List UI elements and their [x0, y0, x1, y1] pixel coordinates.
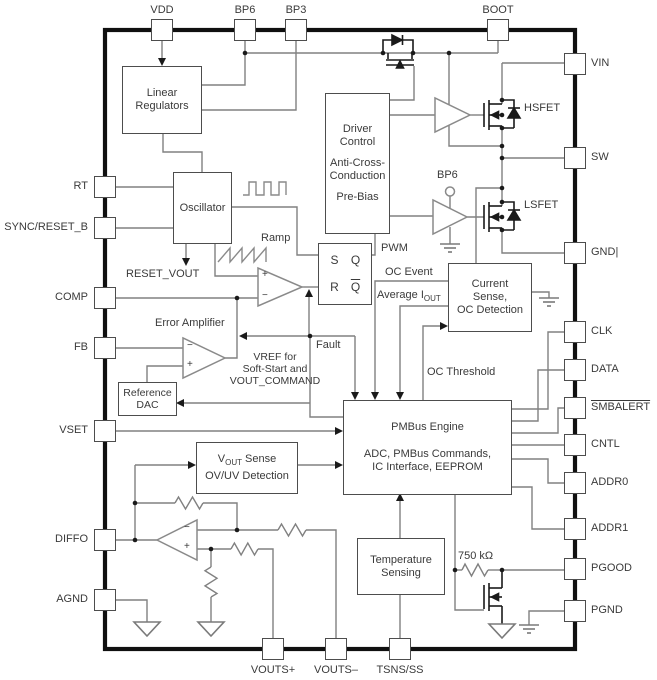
pin-fb [94, 337, 116, 359]
pin-label-agnd: AGND [2, 593, 88, 606]
pgood-fet-symbol [484, 570, 502, 624]
pin-label-vouts-plus: VOUTS+ [243, 664, 303, 677]
pin-pgnd [564, 600, 586, 622]
pin-label-tsns-ss: TSNS/SS [370, 664, 430, 677]
pin-label-vin: VIN [591, 57, 609, 70]
pin-bp3 [285, 19, 307, 41]
driver-control-block: Driver Control Anti-Cross- Conduction Pr… [325, 93, 390, 234]
pin-vset [94, 420, 116, 442]
label-fault: Fault [316, 339, 340, 351]
pin-label-vouts-minus: VOUTS– [306, 664, 366, 677]
pin-label-bp3: BP3 [268, 4, 324, 17]
pin-vdd [151, 19, 173, 41]
vout-sense-block: VOUT Sense OV/UV Detection [196, 442, 298, 494]
diff-amp-minus: − [184, 522, 190, 534]
earth-ground-current-sense [539, 298, 559, 306]
pin-clk [564, 321, 586, 343]
pin-smbalert [564, 397, 586, 419]
error-amp-minus: − [187, 340, 193, 352]
pin-vouts-minus [325, 638, 347, 660]
pwm-comparator-minus: − [262, 290, 268, 302]
pin-label-sync: SYNC/RESET_B [2, 221, 88, 234]
label-reset-vout: RESET_VOUT [126, 268, 199, 280]
linear-regulators-block: Linear Regulators [122, 66, 202, 134]
pin-gnd [564, 242, 586, 264]
pin-vouts-plus [262, 638, 284, 660]
label-ramp: Ramp [261, 232, 290, 244]
pin-label-diffo: DIFFO [2, 533, 88, 546]
pin-label-pgnd: PGND [591, 604, 623, 617]
earth-ground-pgnd [519, 625, 539, 633]
pmbus-engine-block: PMBus Engine ADC, PMBus Commands, IC Int… [343, 400, 512, 495]
diff-sense-amplifier [157, 520, 197, 560]
label-oc-event: OC Event [385, 266, 433, 278]
open-ground-agnd [134, 622, 160, 636]
pin-label-addr0: ADDR0 [591, 476, 628, 489]
bp6-terminal [446, 187, 455, 196]
label-pullup-resistor: 750 kΩ [458, 550, 493, 562]
boot-switch-fet [383, 35, 414, 68]
pin-agnd [94, 589, 116, 611]
label-bp6-internal: BP6 [437, 169, 458, 181]
pin-label-rt: RT [2, 180, 88, 193]
pin-vin [564, 53, 586, 75]
pin-label-vdd: VDD [134, 4, 190, 17]
pin-label-data: DATA [591, 363, 619, 376]
pin-sync-reset-b [94, 217, 116, 239]
pin-boot [487, 19, 509, 41]
pin-data [564, 359, 586, 381]
reference-dac-block: Reference DAC [118, 382, 177, 416]
pin-label-fb: FB [2, 341, 88, 354]
pin-rt [94, 176, 116, 198]
pin-bp6 [234, 19, 256, 41]
label-pwm: PWM [381, 242, 408, 254]
pin-addr1 [564, 518, 586, 540]
ramp-waveform-icon [218, 248, 266, 262]
open-ground-pgood [489, 624, 515, 638]
label-hsfet: HSFET [524, 102, 560, 114]
label-lsfet: LSFET [524, 199, 558, 211]
pin-label-gnd: GND| [591, 246, 618, 259]
clock-waveform-icon [243, 182, 286, 195]
hs-driver-buffer [435, 98, 470, 132]
pwm-comparator-plus: + [262, 269, 268, 281]
pin-cntl [564, 434, 586, 456]
label-error-amplifier: Error Amplifier [155, 317, 225, 329]
block-diagram: Linear Regulators Oscillator Driver Cont… [0, 0, 657, 680]
pin-addr0 [564, 472, 586, 494]
pin-label-bp6: BP6 [217, 4, 273, 17]
diff-amp-plus: + [184, 541, 190, 553]
pin-label-addr1: ADDR1 [591, 522, 628, 535]
pin-label-vset: VSET [2, 424, 88, 437]
oscillator-block: Oscillator [173, 172, 232, 244]
pwm-latch-block: S Q R Q [318, 243, 372, 305]
earth-ground-ls-driver [440, 244, 460, 252]
error-amp-plus: + [187, 359, 193, 371]
pin-label-pgood: PGOOD [591, 562, 632, 575]
pin-label-boot: BOOT [470, 4, 526, 17]
pin-diffo [94, 529, 116, 551]
pin-tsns-ss [389, 638, 411, 660]
label-vref: VREF for Soft-Start and VOUT_COMMAND [222, 351, 328, 387]
pin-label-smbalert: SMBALERT [591, 401, 650, 414]
open-ground-divider [198, 622, 224, 636]
pin-comp [94, 287, 116, 309]
label-oc-threshold: OC Threshold [427, 366, 495, 378]
pin-label-comp: COMP [2, 291, 88, 304]
current-sense-block: Current Sense, OC Detection [448, 263, 532, 332]
pin-label-cntl: CNTL [591, 438, 620, 451]
temperature-sensing-block: Temperature Sensing [357, 538, 445, 595]
pin-pgood [564, 558, 586, 580]
pin-label-clk: CLK [591, 325, 612, 338]
pin-label-sw: SW [591, 151, 609, 164]
pin-sw [564, 147, 586, 169]
label-average-iout: Average IOUT [377, 289, 441, 305]
